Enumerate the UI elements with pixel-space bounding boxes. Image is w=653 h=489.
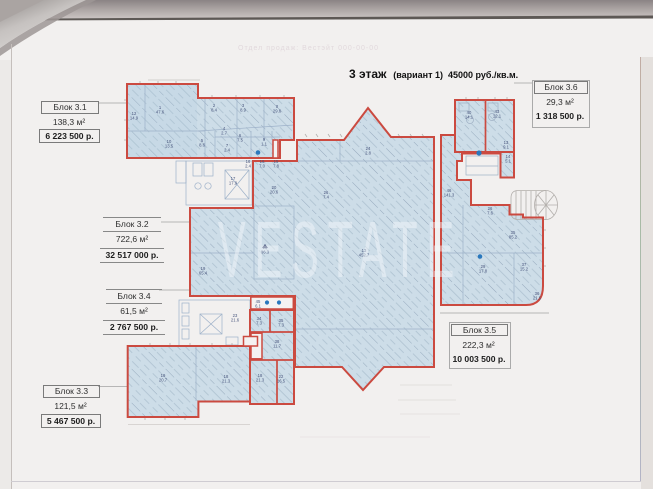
svg-text:29.6: 29.6 — [273, 109, 282, 114]
svg-text:20.7: 20.7 — [159, 378, 168, 383]
svg-text:13.5: 13.5 — [165, 144, 174, 149]
svg-text:7.4: 7.4 — [323, 195, 329, 200]
svg-text:85.2: 85.2 — [509, 235, 518, 240]
svg-text:8.6: 8.6 — [199, 143, 205, 148]
svg-text:2.4: 2.4 — [224, 148, 230, 153]
svg-text:2.7: 2.7 — [221, 131, 227, 136]
svg-text:21.3: 21.3 — [256, 378, 265, 383]
svg-text:8.4: 8.4 — [211, 108, 217, 113]
svg-text:8.9: 8.9 — [240, 108, 246, 113]
svg-text:47.6: 47.6 — [156, 110, 165, 115]
svg-text:14.9: 14.9 — [130, 116, 139, 121]
svg-text:15.2: 15.2 — [520, 267, 529, 272]
svg-text:17.8: 17.8 — [479, 269, 488, 274]
svg-text:2.8: 2.8 — [365, 151, 371, 156]
svg-text:12.1: 12.1 — [493, 114, 502, 119]
svg-text:7.3: 7.3 — [278, 323, 284, 328]
svg-text:21.5: 21.5 — [533, 296, 542, 301]
svg-text:5.1: 5.1 — [505, 159, 511, 164]
svg-text:VESTATE: VESTATE — [218, 204, 463, 294]
svg-text:9.1: 9.1 — [503, 145, 509, 150]
svg-text:14.1: 14.1 — [465, 115, 474, 120]
svg-text:21.6: 21.6 — [231, 318, 240, 323]
svg-text:65.4: 65.4 — [199, 271, 208, 276]
svg-text:7.0: 7.0 — [259, 164, 265, 169]
svg-text:11.7: 11.7 — [273, 344, 282, 349]
svg-text:1.1: 1.1 — [261, 142, 267, 147]
svg-text:141.3: 141.3 — [444, 193, 455, 198]
svg-text:20.6: 20.6 — [270, 190, 279, 195]
svg-text:7.8: 7.8 — [273, 164, 279, 169]
svg-text:21.3: 21.3 — [222, 379, 231, 384]
svg-text:7.6: 7.6 — [487, 211, 493, 216]
svg-text:7.3: 7.3 — [256, 321, 262, 326]
svg-text:6.1: 6.1 — [255, 304, 261, 309]
svg-text:7.5: 7.5 — [237, 138, 243, 143]
svg-text:17.9: 17.9 — [229, 181, 238, 186]
svg-text:2.4: 2.4 — [245, 164, 251, 169]
svg-text:16.5: 16.5 — [277, 379, 286, 384]
